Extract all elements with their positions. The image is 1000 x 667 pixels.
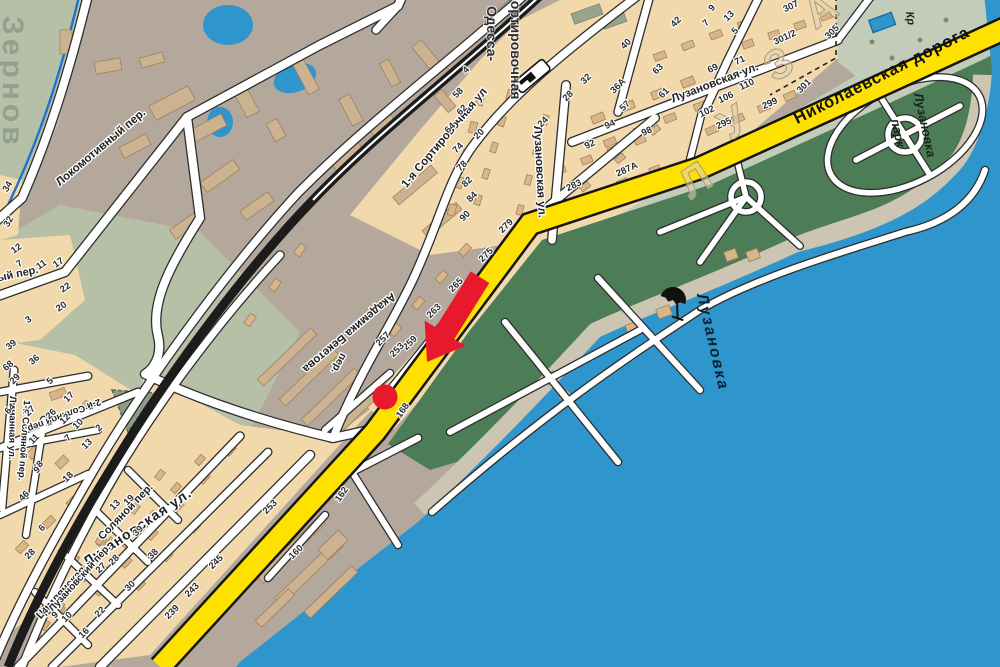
area-name-label: Зернов [0, 16, 29, 149]
city-map: Локомотивный пер.Локомотивный пер.Одесса… [0, 0, 1000, 667]
red-dot-marker [373, 385, 398, 410]
map-viewport: Локомотивный пер.Локомотивный пер.Одесса… [0, 0, 1000, 667]
street-label: Одесса- [484, 6, 500, 62]
street-label: Кр [903, 11, 917, 26]
street-label: -Сортировочная [508, 0, 524, 99]
